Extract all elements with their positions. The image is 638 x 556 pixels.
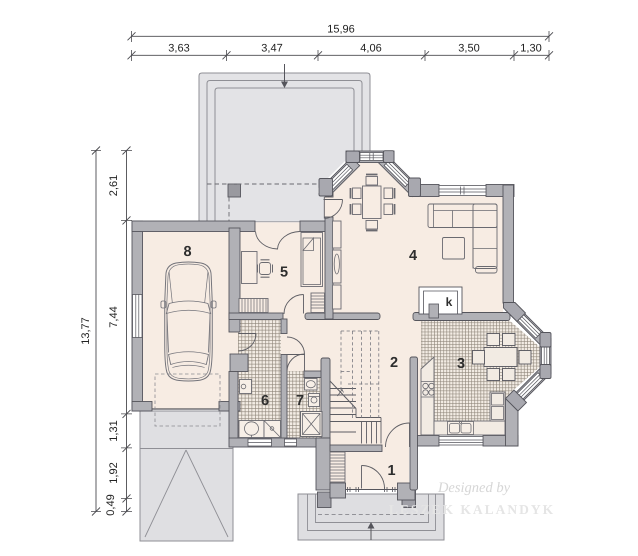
svg-text:2: 2 [390,355,398,371]
svg-text:Designed by: Designed by [437,480,511,496]
svg-text:8: 8 [183,244,191,260]
svg-text:1,31: 1,31 [108,420,120,441]
svg-text:3: 3 [457,356,465,372]
svg-text:7,44: 7,44 [108,306,120,327]
svg-text:13,77: 13,77 [80,317,92,345]
svg-text:15,96: 15,96 [327,24,355,36]
svg-text:3,50: 3,50 [458,43,479,55]
svg-text:LESZEK KALANDYK: LESZEK KALANDYK [389,502,555,517]
svg-text:0,49: 0,49 [105,494,117,515]
svg-text:1: 1 [387,463,395,479]
svg-text:3,47: 3,47 [261,43,282,55]
svg-text:2,61: 2,61 [108,175,120,196]
svg-text:1,92: 1,92 [108,462,120,483]
svg-text:6: 6 [261,393,269,409]
svg-text:4,06: 4,06 [360,43,381,55]
svg-text:1,30: 1,30 [520,43,541,55]
svg-text:k: k [446,295,453,309]
svg-text:5: 5 [280,265,288,281]
svg-text:3,63: 3,63 [168,43,189,55]
svg-text:4: 4 [409,248,417,264]
svg-text:7: 7 [296,393,304,409]
